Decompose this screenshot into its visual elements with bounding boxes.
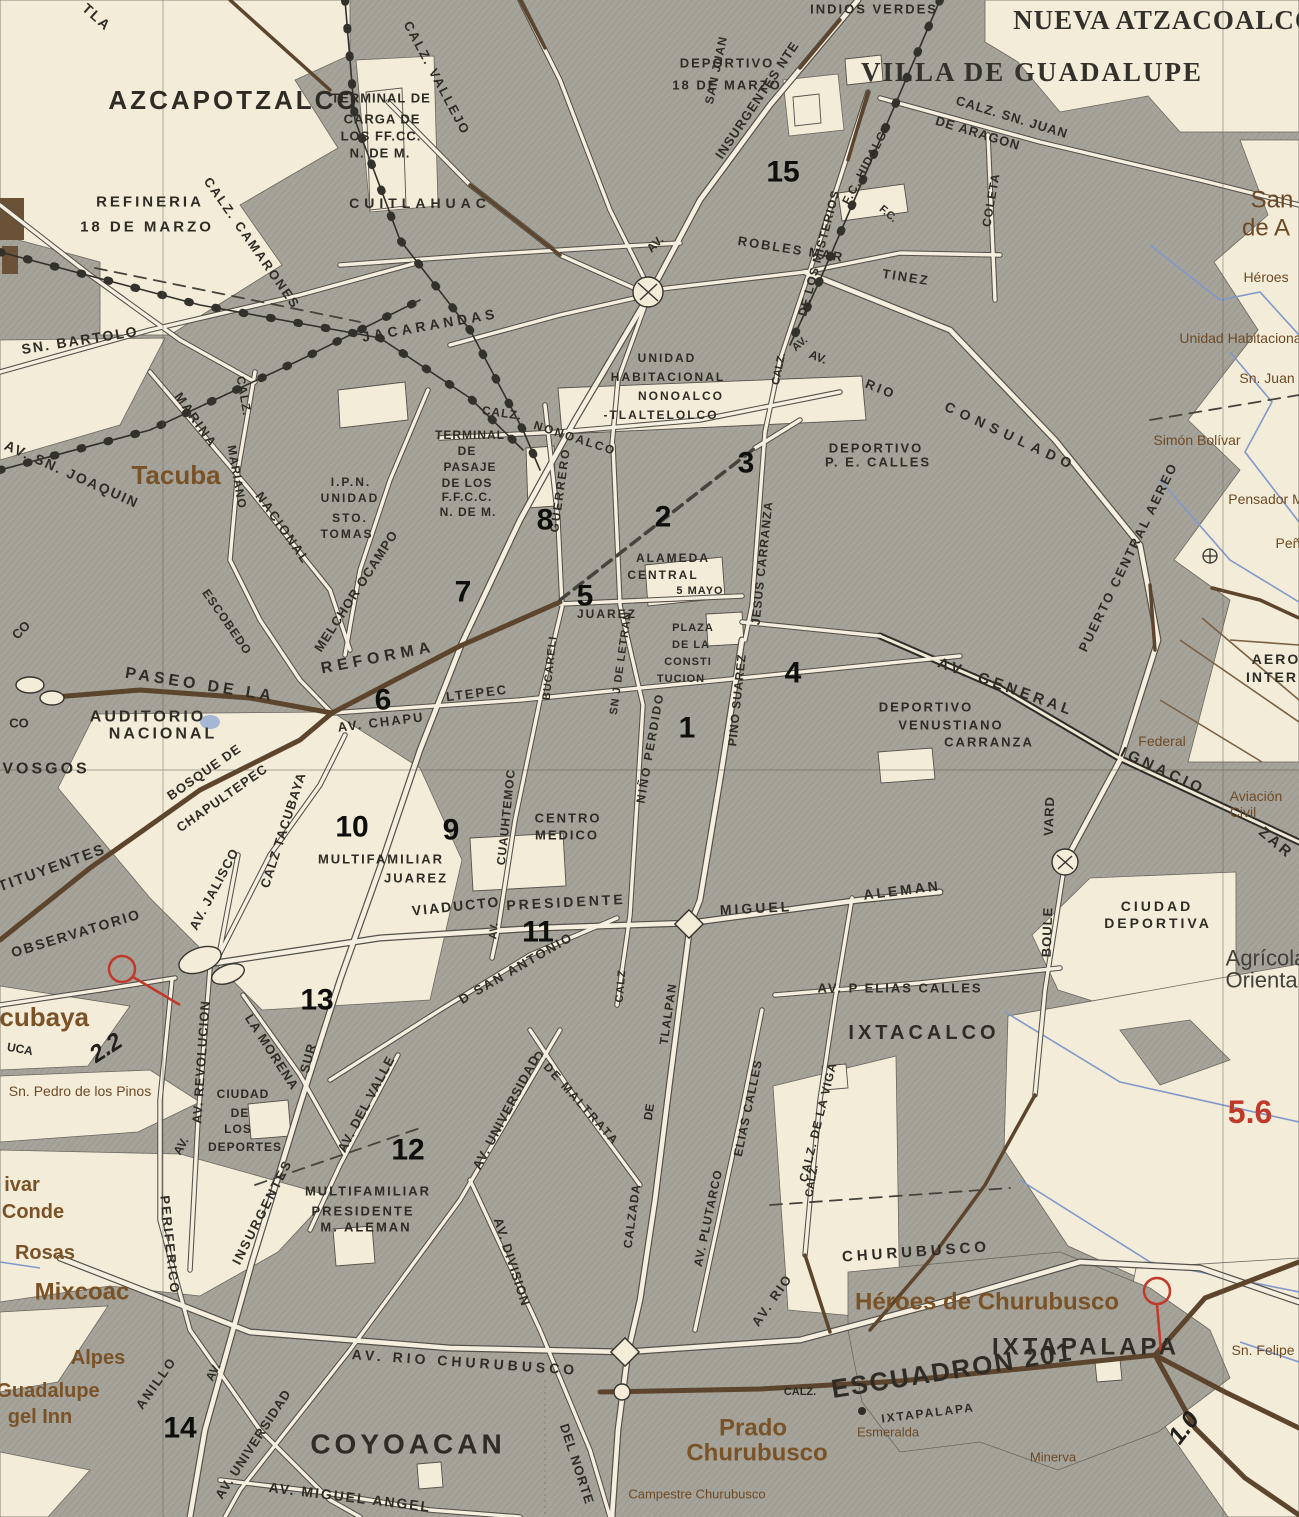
map-label: CARGA DE (344, 112, 421, 127)
map-label: DE (641, 1103, 657, 1121)
map-label: LOS (224, 1122, 252, 1136)
map-label: Unidad Habitacional (1179, 330, 1299, 346)
map-label: UNIDAD (638, 351, 697, 365)
map-label: MEDICO (535, 828, 599, 843)
map-label: BOULE (1039, 907, 1056, 958)
map-label: DEPORTIVO (680, 56, 775, 71)
map-label: MULTIFAMILIAR (305, 1184, 431, 1199)
map-label: CIUDAD (1121, 898, 1193, 914)
map-label: CARRANZA (944, 735, 1034, 750)
map-label: 3 (738, 447, 755, 480)
map-label: Héroes (1243, 269, 1288, 285)
map-label: DE (231, 1106, 250, 1120)
map-label: Civil (1230, 804, 1256, 820)
map-label: PLAZA (672, 622, 714, 634)
map-label: 14 (163, 1412, 197, 1445)
map-label: 10 (335, 811, 368, 844)
map-label: INDIOS VERDES (810, 2, 938, 17)
map-label: 18 DE MARZO (80, 219, 214, 236)
map-label: 4 (785, 657, 802, 690)
map-label: 2 (655, 501, 672, 534)
map-label: Tacuba (131, 460, 221, 490)
map-label: P. E. CALLES (825, 455, 931, 470)
map-label: HABITACIONAL (611, 370, 725, 384)
map-label: San (1251, 187, 1294, 214)
map-label: AZCAPOTZALCO (108, 85, 359, 115)
city-map[interactable]: TLAAZCAPOTZALCOTERMINAL DECARGA DELOS FF… (0, 0, 1299, 1517)
map-label: F.F.C.C. (442, 490, 493, 504)
map-label: TERMINAL DE (331, 91, 431, 106)
crossed-circle-symbol (1203, 549, 1217, 563)
map-label: AV. (487, 922, 501, 940)
map-label: INTER (1246, 669, 1298, 685)
map-label: PASAJE (443, 460, 496, 474)
map-label: Sn. Felipe (1231, 1342, 1294, 1358)
map-label: Campestre Churubusco (628, 1487, 765, 1502)
map-label: Tacubaya (0, 1002, 90, 1032)
map-label: CUITLAHUAC (349, 195, 491, 211)
map-label: TOMAS (320, 527, 373, 541)
map-label: -TLALTELOLCO (603, 408, 718, 422)
map-label: NUEVA ATZACOALCO (1013, 5, 1299, 35)
map-label: COYOACAN (310, 1429, 505, 1460)
map-label: MULTIFAMILIAR (318, 852, 444, 867)
map-label: VARD (1041, 796, 1057, 836)
map-label: PRESIDENTE (311, 1204, 414, 1219)
map-label: CIUDAD (217, 1087, 270, 1101)
map-label: VILLA DE GUADALUPE (861, 57, 1203, 87)
map-label: VOSGOS (2, 761, 89, 778)
map-label: REFINERIA (96, 194, 204, 211)
map-label: IXTACALCO (848, 1022, 999, 1044)
map-label: Alpes (71, 1347, 125, 1369)
map-label: STO. (332, 511, 368, 525)
map-label: Simón Bolívar (1153, 432, 1240, 448)
map-label: 5 MAYO (676, 585, 723, 597)
map-label: CONSTI (664, 656, 712, 668)
map-label: Aviación (1230, 788, 1283, 804)
map-label: NACIONAL (109, 726, 217, 743)
map-label: Conde (2, 1201, 64, 1223)
map-label: Peñ (1276, 535, 1299, 551)
map-label: VENUSTIANO (898, 718, 1003, 733)
map-label: LOS FF.CC. (341, 129, 422, 144)
map-label: Prado (719, 1415, 787, 1442)
map-label: CENTRAL (627, 568, 698, 582)
map-label: CENTRO (535, 811, 602, 826)
map-label: Héroes de Churubusco (855, 1289, 1119, 1316)
map-label: TUCION (657, 673, 705, 685)
map-label: N. DE M. (440, 505, 497, 519)
map-label: Churubusco (686, 1440, 827, 1467)
map-label: Minerva (1030, 1450, 1077, 1465)
map-label: 13 (300, 984, 333, 1017)
map-label: Sn. Juan (1239, 370, 1294, 386)
map-label: NONOALCO (638, 389, 724, 403)
map-label: ALAMEDA (636, 551, 710, 565)
map-label: DEPORTIVO (829, 441, 924, 456)
map-label: Federal (1138, 733, 1185, 749)
map-label: IXTAPALAPA (992, 1334, 1180, 1361)
map-label: Oriental (1225, 968, 1299, 993)
map-label: 1 (679, 712, 696, 745)
map-label: ivar (4, 1174, 40, 1196)
map-label: AUDITORIO (90, 709, 206, 726)
map-label: 15 (766, 156, 799, 189)
map-label: UNIDAD (321, 491, 380, 505)
map-label: DEPORTES (208, 1140, 282, 1154)
map-label: Pensador M (1228, 491, 1299, 507)
map-label: I.P.N. (331, 475, 371, 489)
map-label: 8 (537, 504, 554, 537)
map-label: Rosas (15, 1242, 75, 1264)
map-label: 5.6 (1228, 1094, 1272, 1130)
map-label: DEPORTIVA (1104, 915, 1212, 931)
town-dot-ixtapalapa (858, 1407, 866, 1415)
map-label: 6 (375, 684, 392, 717)
map-label: DE LA (672, 639, 710, 651)
map-label: TERMINAL (435, 428, 505, 442)
map-label: Esmeralda (857, 1425, 920, 1440)
map-label: CALZ. (784, 1386, 816, 1398)
map-label: DE (458, 444, 477, 458)
map-label: M. ALEMAN (320, 1220, 411, 1235)
map-label: Mixcoac (35, 1279, 130, 1306)
map-label: 7 (455, 576, 472, 609)
map-label: DE LOS (442, 476, 493, 490)
map-label: AV. P ELIAS CALLES (817, 981, 982, 996)
map-label: 5 (577, 580, 594, 613)
map-label: Guadalupe (0, 1380, 100, 1402)
map-label: 12 (391, 1134, 424, 1167)
map-label: DEPORTIVO (879, 700, 974, 715)
map-label: gel Inn (8, 1406, 72, 1428)
map-label: CO (9, 716, 29, 731)
map-label: Sn. Pedro de los Pinos (9, 1083, 151, 1099)
map-label: JUAREZ (384, 871, 448, 886)
map-label: AERO (1252, 651, 1299, 667)
map-label: N. DE M. (350, 146, 411, 161)
map-label: 9 (443, 814, 460, 847)
map-label: de A (1242, 215, 1290, 242)
